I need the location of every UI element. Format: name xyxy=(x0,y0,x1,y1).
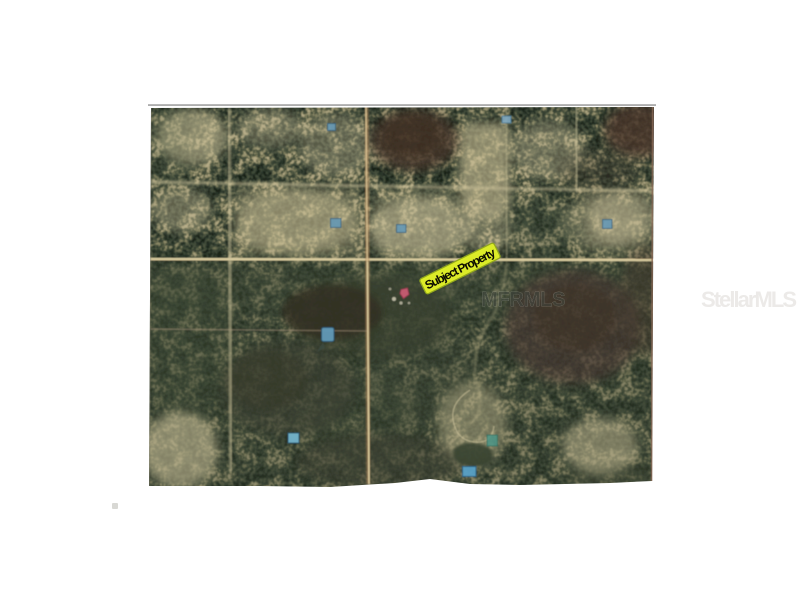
svg-text:MFRMLS: MFRMLS xyxy=(481,289,567,311)
svg-text:StellarMLS: StellarMLS xyxy=(701,287,797,312)
